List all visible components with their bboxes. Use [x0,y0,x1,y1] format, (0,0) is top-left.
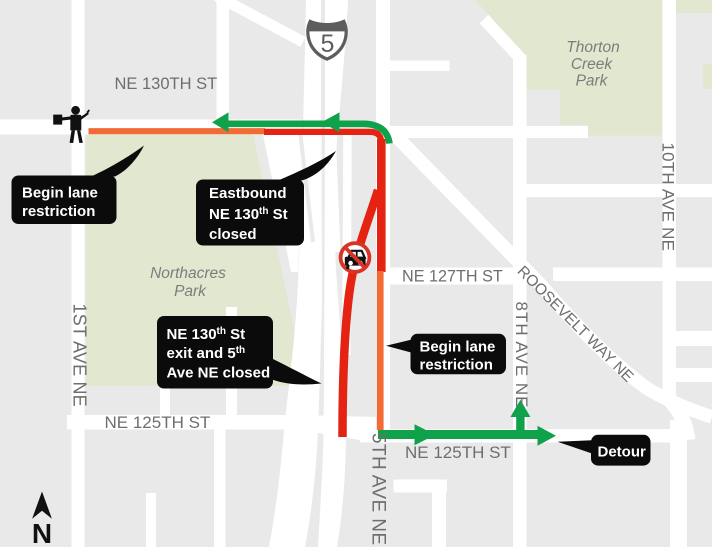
svg-text:NE 125TH ST: NE 125TH ST [105,413,211,432]
svg-text:10TH AVE NE: 10TH AVE NE [659,143,678,252]
svg-text:restriction: restriction [420,356,493,373]
svg-text:Creek: Creek [571,56,614,73]
svg-text:NE 125TH ST: NE 125TH ST [405,443,511,462]
svg-text:Begin lane: Begin lane [22,185,98,202]
svg-text:Detour: Detour [598,444,646,461]
svg-text:NE 130th St: NE 130th St [167,326,246,343]
svg-text:Eastbound: Eastbound [209,185,287,202]
svg-text:Thorton: Thorton [566,39,619,56]
svg-text:closed: closed [209,226,257,243]
svg-text:Northacres: Northacres [150,265,226,282]
svg-text:Park: Park [576,73,609,90]
svg-text:1ST AVE NE: 1ST AVE NE [70,304,90,407]
svg-text:5: 5 [321,30,335,58]
svg-text:NE 127TH ST: NE 127TH ST [402,268,503,286]
svg-text:exit and 5th: exit and 5th [167,345,246,362]
svg-text:Begin lane: Begin lane [420,338,496,355]
svg-text:N: N [32,518,52,547]
svg-text:restriction: restriction [22,203,95,220]
svg-text:NE 130TH ST: NE 130TH ST [115,75,218,93]
svg-text:NE 130th St: NE 130th St [209,206,288,223]
svg-text:Ave NE closed: Ave NE closed [167,364,271,381]
svg-text:Park: Park [174,283,207,300]
svg-text:5TH AVE NE: 5TH AVE NE [368,433,389,545]
svg-text:8TH AVE NE: 8TH AVE NE [512,302,531,409]
